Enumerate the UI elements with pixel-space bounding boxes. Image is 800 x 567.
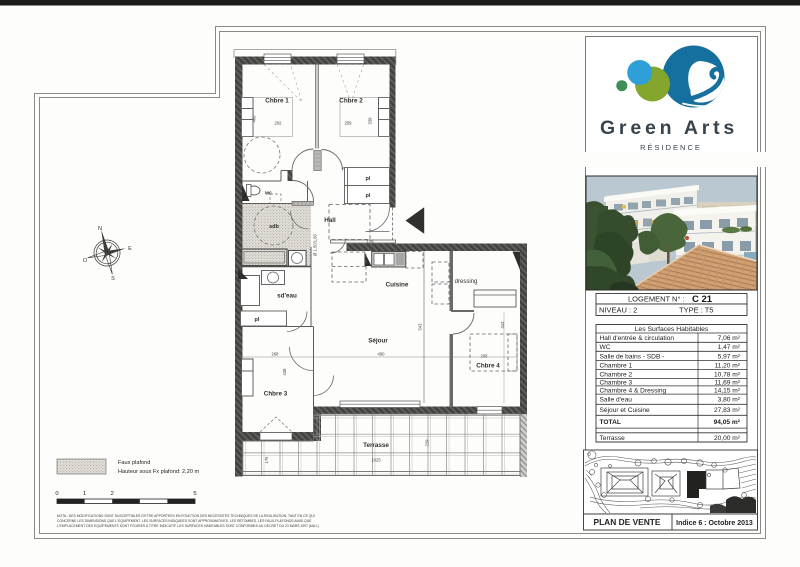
svg-text:11,69 m²: 11,69 m² [714, 380, 740, 387]
svg-text:129: 129 [367, 239, 375, 244]
svg-text:TOTAL: TOTAL [600, 419, 621, 426]
svg-text:C 21: C 21 [692, 294, 713, 305]
svg-text:pl: pl [366, 193, 371, 199]
svg-text:5: 5 [193, 491, 196, 497]
svg-text:Chambre 4 & Dressing: Chambre 4 & Dressing [600, 387, 667, 394]
svg-text:Chambre 3: Chambre 3 [600, 380, 633, 387]
svg-text:2: 2 [111, 491, 114, 497]
svg-text:L'EMPLACEMENT DES EQUIPEMENTS: L'EMPLACEMENT DES EQUIPEMENTS SONT FIGUR… [57, 524, 319, 528]
svg-text:Ø 1,50/1,80: Ø 1,50/1,80 [313, 233, 318, 256]
svg-text:400: 400 [252, 115, 257, 123]
svg-text:1: 1 [83, 491, 86, 497]
svg-text:Chbre 3: Chbre 3 [264, 391, 288, 398]
svg-text:Green Arts: Green Arts [600, 117, 738, 139]
svg-text:E: E [128, 246, 132, 252]
svg-text:0: 0 [55, 491, 58, 497]
svg-text:229: 229 [425, 439, 430, 447]
svg-text:14,15 m²: 14,15 m² [714, 387, 741, 394]
svg-text:O: O [83, 258, 88, 264]
svg-text:pl: pl [366, 176, 371, 182]
svg-text:3,80 m²: 3,80 m² [718, 397, 741, 404]
svg-text:5,97 m²: 5,97 m² [718, 353, 741, 360]
svg-text:Chambre 2: Chambre 2 [600, 372, 633, 379]
svg-text:Salle de bains - SDB -: Salle de bains - SDB - [600, 353, 665, 360]
svg-text:Hall: Hall [324, 217, 336, 224]
svg-text:NOTA : DES MODIFICATIONS SONT: NOTA : DES MODIFICATIONS SONT SUSCEPTIBL… [57, 514, 315, 518]
svg-text:1,47 m²: 1,47 m² [718, 344, 741, 351]
svg-text:1025: 1025 [371, 458, 381, 463]
svg-text:Les Surfaces Habitables: Les Surfaces Habitables [635, 326, 709, 333]
svg-text:10,78 m²: 10,78 m² [714, 372, 741, 379]
svg-text:292: 292 [275, 121, 283, 126]
svg-text:27,83 m²: 27,83 m² [714, 407, 741, 414]
svg-text:TYPE : T5: TYPE : T5 [679, 306, 713, 315]
svg-text:LOGEMENT N° :: LOGEMENT N° : [628, 294, 685, 303]
svg-text:pl: pl [255, 317, 260, 323]
svg-text:Chambre 1: Chambre 1 [600, 363, 633, 370]
svg-text:Indice 6 : Octobre 2013: Indice 6 : Octobre 2013 [676, 520, 753, 527]
svg-text:Hauteur sous Fx plafond: 2,20: Hauteur sous Fx plafond: 2,20 m [118, 469, 199, 475]
svg-text:20,00 m²: 20,00 m² [714, 435, 741, 442]
svg-text:dressing: dressing [455, 279, 478, 285]
svg-text:Salle d'eau: Salle d'eau [600, 397, 633, 404]
svg-text:Séjour: Séjour [368, 338, 388, 345]
svg-text:94,05 m²: 94,05 m² [714, 419, 741, 426]
svg-text:RÉSIDENCE: RÉSIDENCE [640, 143, 702, 152]
svg-text:Cuisine: Cuisine [386, 282, 409, 289]
svg-text:sdb: sdb [269, 224, 279, 230]
svg-text:PLAN DE VENTE: PLAN DE VENTE [593, 517, 660, 527]
svg-text:343: 343 [500, 321, 505, 329]
svg-text:wc: wc [264, 191, 272, 197]
svg-text:438: 438 [282, 368, 287, 376]
svg-text:CONCERNE LES DIMENSIONS QUE L': CONCERNE LES DIMENSIONS QUE L'EQUIPEMENT… [57, 519, 312, 523]
svg-text:268: 268 [272, 352, 280, 357]
svg-text:Faux plafond: Faux plafond [118, 460, 150, 466]
svg-text:259: 259 [345, 121, 353, 126]
svg-text:sd'eau: sd'eau [277, 293, 297, 300]
svg-text:543: 543 [418, 323, 423, 331]
svg-text:S: S [111, 276, 115, 282]
svg-text:176: 176 [264, 456, 269, 464]
svg-text:Séjour et Cuisine: Séjour et Cuisine [600, 407, 651, 414]
svg-text:338: 338 [368, 117, 373, 125]
svg-text:NIVEAU : 2: NIVEAU : 2 [599, 306, 637, 315]
svg-text:208: 208 [481, 354, 489, 359]
svg-text:11,20 m²: 11,20 m² [714, 363, 740, 370]
svg-text:Hall d'entrée & circulation: Hall d'entrée & circulation [600, 335, 675, 342]
svg-text:N: N [98, 226, 102, 232]
svg-text:WC: WC [600, 344, 611, 351]
svg-text:Chbre 4: Chbre 4 [476, 363, 500, 370]
svg-text:7,06 m²: 7,06 m² [718, 335, 741, 342]
svg-text:Chbre 2: Chbre 2 [339, 98, 363, 105]
svg-text:Terrasse: Terrasse [363, 442, 389, 449]
svg-text:490: 490 [378, 352, 386, 357]
svg-text:Chbre 1: Chbre 1 [265, 98, 289, 105]
svg-text:Terrasse: Terrasse [600, 435, 626, 442]
